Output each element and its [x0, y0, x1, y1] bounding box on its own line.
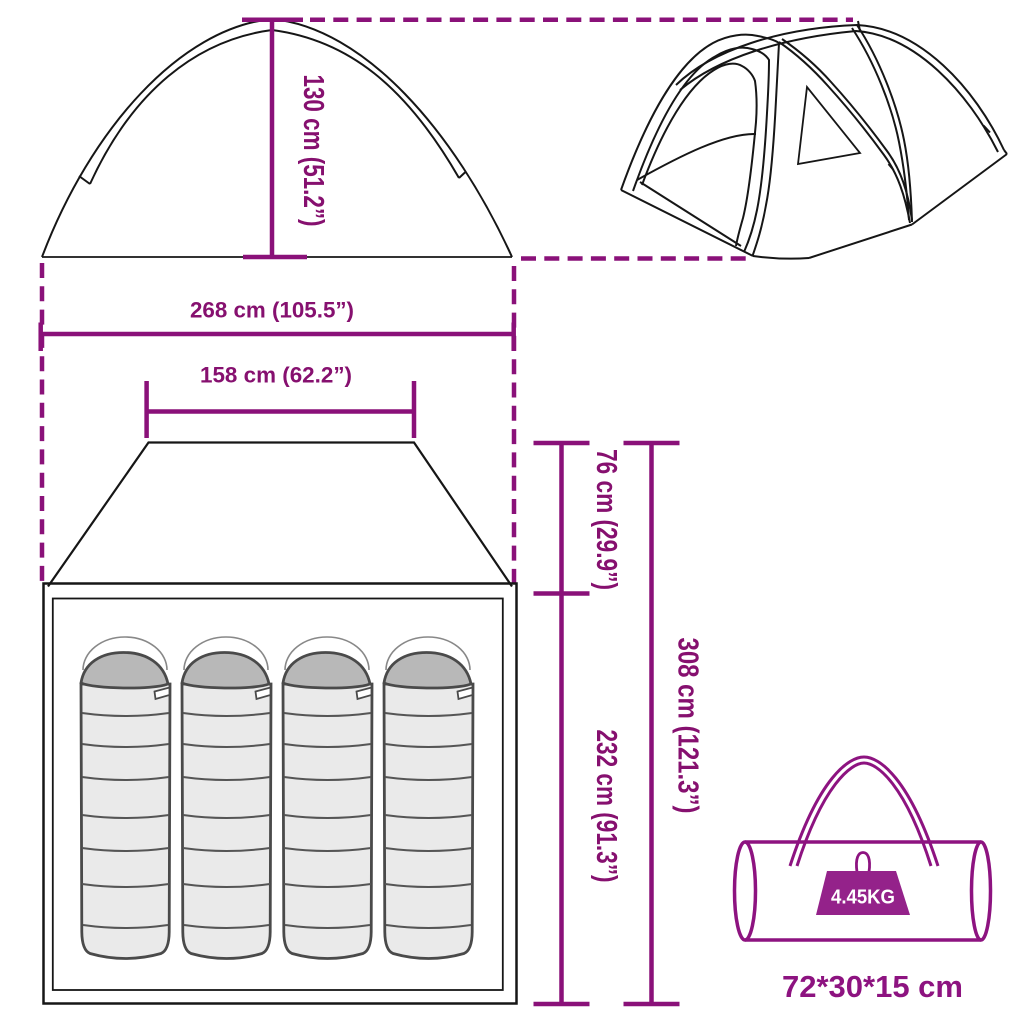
svg-text:130 cm (51.2”): 130 cm (51.2”): [297, 75, 329, 227]
svg-text:4.45KG: 4.45KG: [831, 886, 895, 909]
svg-text:232 cm (91.3”): 232 cm (91.3”): [590, 730, 622, 883]
svg-text:268 cm (105.5”): 268 cm (105.5”): [190, 298, 354, 323]
svg-text:308 cm (121.3”): 308 cm (121.3”): [672, 638, 704, 814]
svg-text:72*30*15 cm: 72*30*15 cm: [782, 970, 963, 1004]
svg-text:158 cm (62.2”): 158 cm (62.2”): [200, 363, 352, 388]
svg-text:76 cm (29.9”): 76 cm (29.9”): [590, 449, 622, 590]
